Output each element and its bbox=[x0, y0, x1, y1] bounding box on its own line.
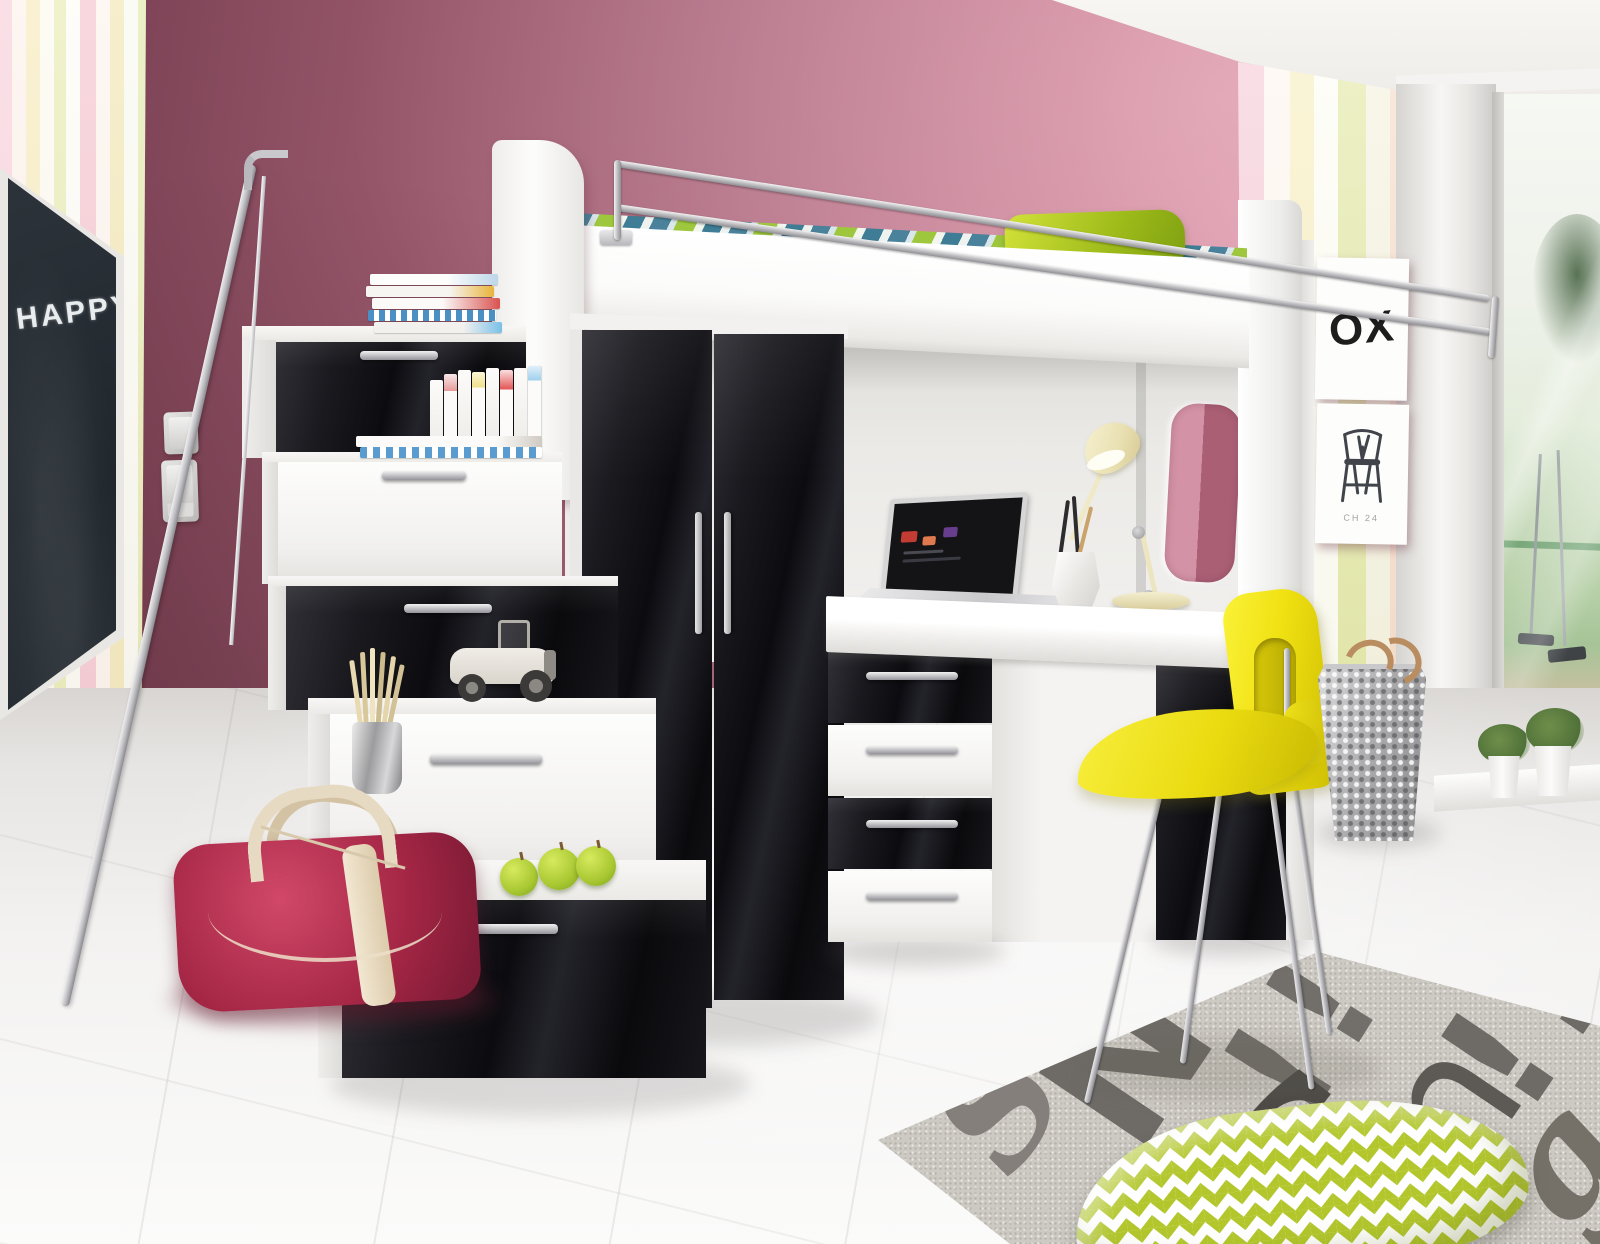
wardrobe-handle[interactable] bbox=[724, 512, 731, 634]
desk-drawer-handle[interactable] bbox=[866, 746, 958, 754]
step3-side bbox=[268, 586, 286, 710]
apple bbox=[576, 846, 616, 886]
wardrobe-door-right[interactable] bbox=[714, 334, 844, 1000]
window-jamb bbox=[1492, 92, 1504, 786]
wardrobe-handle[interactable] bbox=[695, 512, 702, 634]
room-scene: S N !! S n !! g HAPPY OX CH 24 bbox=[0, 0, 1600, 1244]
toy-car-wheel bbox=[520, 670, 552, 702]
apple bbox=[538, 848, 580, 890]
glass-reflection bbox=[1504, 94, 1600, 782]
plant-pot bbox=[1532, 746, 1574, 796]
book-stack bbox=[366, 274, 498, 336]
wire-basket bbox=[1318, 664, 1426, 841]
chair-floor-shadow bbox=[1080, 1038, 1380, 1100]
desk-drawer-2[interactable] bbox=[828, 725, 992, 796]
step2-side bbox=[262, 462, 278, 584]
apple bbox=[500, 858, 538, 896]
desk-drawer-handle[interactable] bbox=[866, 892, 958, 900]
desk-drawer-3[interactable] bbox=[828, 798, 992, 869]
wishbone-chair-icon bbox=[1331, 424, 1392, 509]
step2-handle[interactable] bbox=[382, 471, 466, 480]
step1-handle[interactable] bbox=[360, 351, 438, 360]
lamp-joint bbox=[1132, 526, 1145, 539]
chalkboard: HAPPY bbox=[8, 178, 116, 710]
toy-car-wheel bbox=[458, 674, 486, 702]
poster-caption: CH 24 bbox=[1343, 513, 1379, 524]
poster-wishbone-chair: CH 24 bbox=[1315, 403, 1409, 545]
desk-drawer-handle[interactable] bbox=[866, 820, 958, 828]
chalkboard-text: HAPPY bbox=[14, 289, 136, 337]
step3-handle[interactable] bbox=[404, 604, 492, 613]
guard-rail-post bbox=[614, 160, 621, 240]
lying-books bbox=[356, 436, 546, 460]
desk-drawer-handle[interactable] bbox=[866, 672, 958, 680]
desk-drawer-1[interactable] bbox=[828, 652, 992, 723]
desk-drawer-4[interactable] bbox=[828, 871, 992, 942]
chalkboard-frame: HAPPY bbox=[0, 168, 124, 720]
step2-drawer[interactable] bbox=[278, 462, 562, 584]
plant-pot bbox=[1486, 756, 1522, 798]
step4-handle[interactable] bbox=[430, 754, 542, 764]
handrail-bend bbox=[244, 150, 288, 190]
side-panel-cutout bbox=[1163, 402, 1242, 583]
pencil-cup bbox=[352, 722, 402, 794]
window-glass bbox=[1504, 94, 1600, 782]
bag-seam bbox=[208, 862, 442, 962]
